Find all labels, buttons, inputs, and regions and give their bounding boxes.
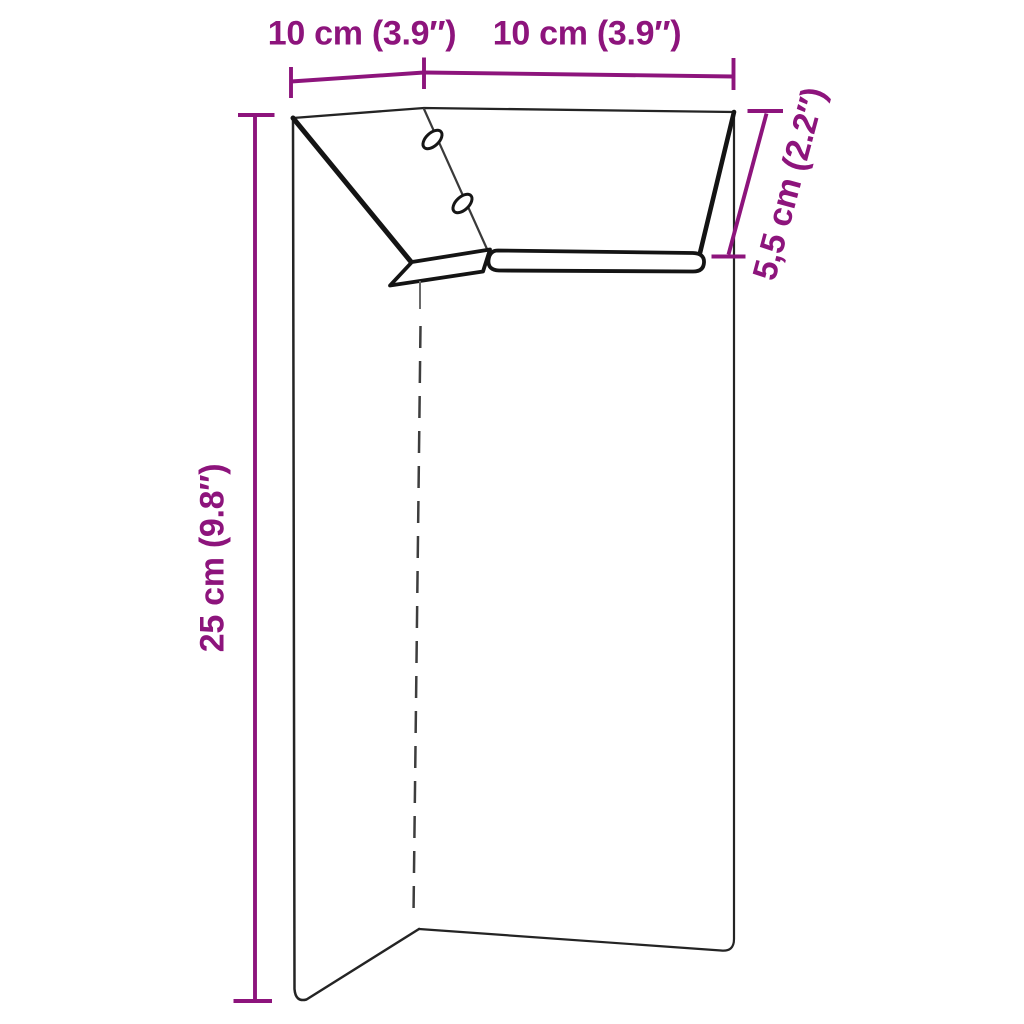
product-drawing: [0, 0, 1024, 1024]
dimension-lines: [234, 58, 784, 1002]
dimension-label-width-left: 10 cm (3.9″): [268, 15, 456, 54]
screw-holes: [420, 127, 476, 216]
dimension-line-left: [234, 115, 275, 1001]
dimension-diagram: 10 cm (3.9″) 10 cm (3.9″) 5,5 cm (2.2″) …: [0, 0, 1024, 1024]
dimension-line-top: [291, 58, 734, 99]
panel-outline: [293, 108, 734, 1000]
dimension-label-width-right: 10 cm (3.9″): [493, 15, 681, 54]
dimension-label-height: 25 cm (9.8″): [194, 464, 233, 652]
corner-fold-line: [414, 281, 421, 914]
top-shade: [293, 109, 734, 286]
